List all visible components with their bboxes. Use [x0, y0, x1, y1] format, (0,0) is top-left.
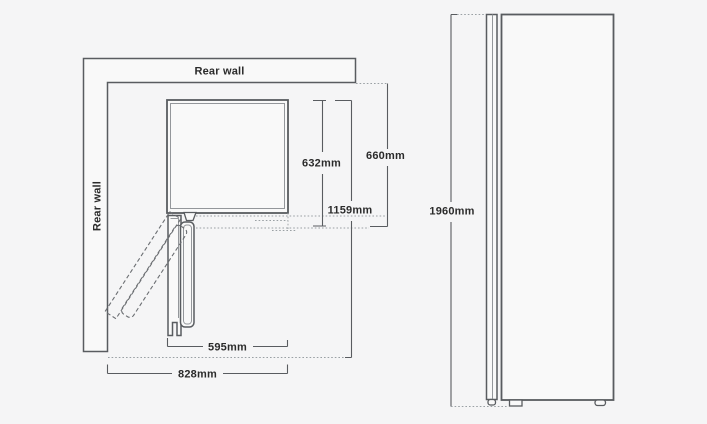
dim-total-width-label: 828mm [178, 369, 217, 381]
front-foot [510, 400, 523, 406]
dim-cabinet-width-label: 595mm [208, 342, 247, 354]
rear-wheel [595, 400, 606, 406]
rear-wall-top-label: Rear wall [194, 66, 244, 78]
diagram-canvas: Rear wall Rear wall [0, 0, 707, 424]
dim-total-depth-label: 660mm [366, 150, 405, 162]
dim-depth-door-open-label: 1159mm [328, 205, 373, 217]
door-bottom-cap [488, 400, 496, 406]
fridge-top-view-cabinet [167, 100, 288, 221]
dim-cabinet-depth-label: 632mm [302, 158, 341, 170]
installation-dimensions-diagram: Rear wall Rear wall [0, 0, 707, 424]
fridge-side-door [487, 15, 498, 406]
rear-wall-side-label: Rear wall [92, 181, 104, 231]
fridge-side-body [502, 15, 614, 401]
dim-height-label: 1960mm [429, 206, 474, 218]
